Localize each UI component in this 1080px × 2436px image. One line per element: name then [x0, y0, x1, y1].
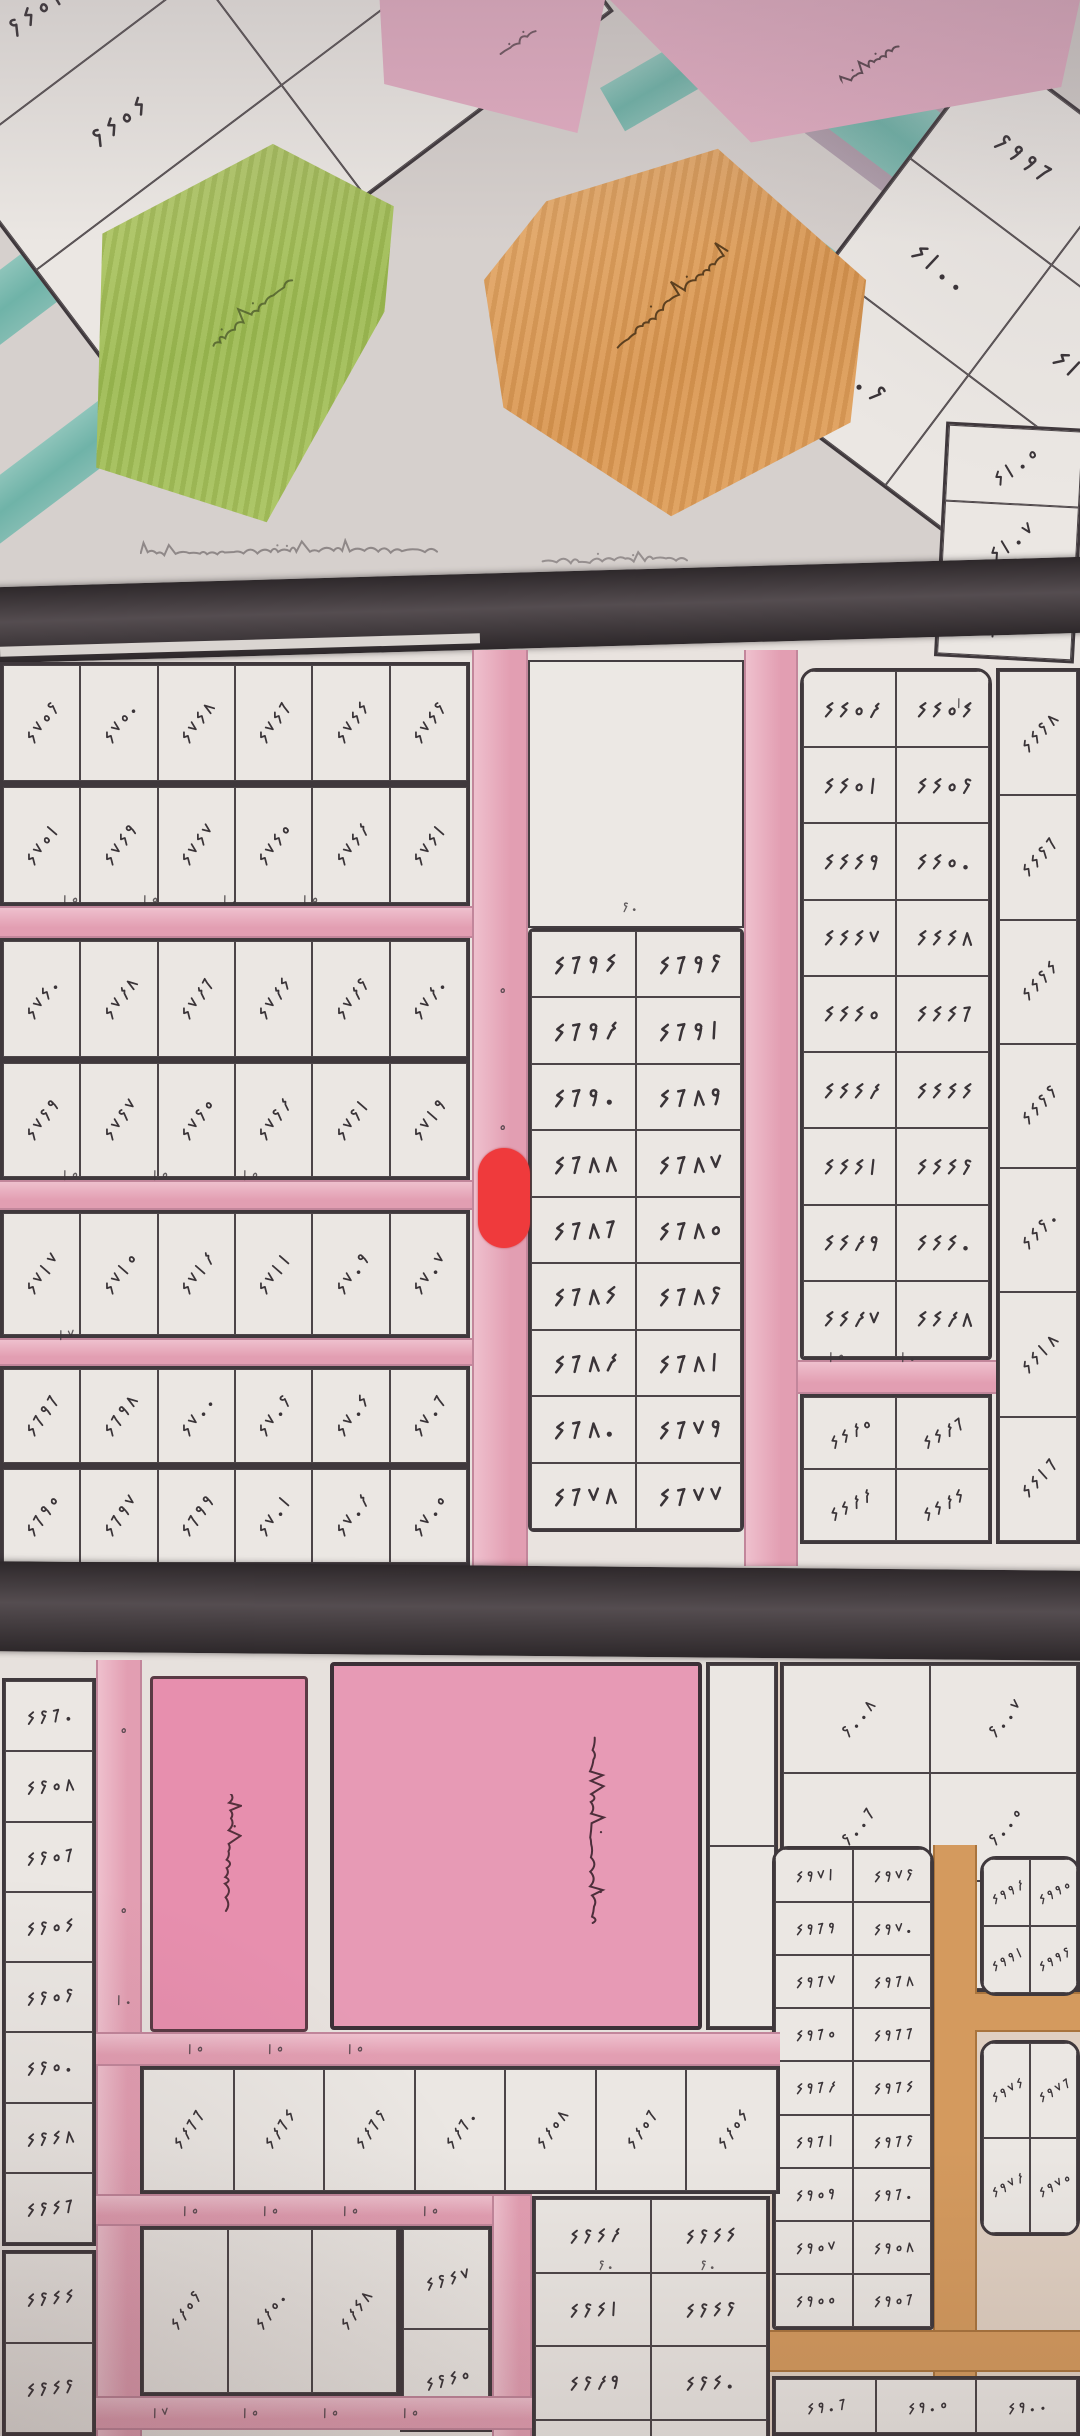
plot-cell: [312, 941, 389, 1057]
plot-number-glyphs: [319, 2405, 339, 2420]
plot-number-glyphs: [399, 2405, 419, 2420]
plot-row-bottom-right-edge: [772, 2376, 1080, 2436]
plot-cell: [775, 1955, 853, 2008]
plot-cell: [983, 2043, 1030, 2138]
plot-number: [792, 1920, 836, 1938]
plot-cell: [636, 1396, 741, 1462]
plot-cell: [1030, 1926, 1077, 1993]
plot-cell: [803, 900, 896, 976]
plot-number-glyphs: [904, 2396, 949, 2417]
plot-number-glyphs: [184, 2041, 204, 2056]
plot-cell: [896, 823, 989, 899]
plot-cell: [803, 747, 896, 823]
plot-number: [1015, 709, 1060, 756]
plot-number: [565, 2372, 620, 2394]
plot-number: [654, 1349, 724, 1377]
plot-cell: [775, 2274, 853, 2327]
plot-number: [250, 2288, 289, 2335]
plot-number-glyphs: [1015, 1331, 1060, 1378]
plot-cell: [686, 2069, 777, 2191]
plot-strip-1a: [0, 662, 470, 784]
plot-cell: [403, 2229, 489, 2329]
plot-number: [549, 950, 619, 978]
street-left-3: [0, 1338, 472, 1366]
plot-cell: [596, 2069, 687, 2191]
plot-number-glyphs: [917, 1485, 968, 1524]
plot-number: [1034, 2076, 1073, 2106]
plot-number-glyphs: [565, 2225, 620, 2247]
plot-number-glyphs: [264, 2041, 284, 2056]
plot-number-glyphs: [870, 2185, 914, 2203]
plot-cell: [143, 2069, 234, 2191]
plot-number: [549, 1349, 619, 1377]
plot-number-glyphs: [792, 1920, 836, 1938]
plot-number-glyphs: [253, 1095, 295, 1145]
plot-number: [983, 1804, 1025, 1849]
plot-cell: [775, 2061, 853, 2114]
plot-cell: [80, 787, 157, 903]
plot-number: [407, 1491, 449, 1541]
plot-number-glyphs: [22, 1775, 75, 1798]
plot-number: [549, 1416, 619, 1444]
plot-number: [22, 1775, 75, 1798]
street-dimension: [344, 2041, 364, 2056]
plot-number-glyphs: [870, 1920, 914, 1938]
plot-number: [531, 2107, 570, 2154]
plot-number: [330, 1491, 372, 1541]
plot-cell: [775, 2115, 853, 2168]
plot-number: [824, 1485, 875, 1524]
street-central-west: [472, 650, 528, 1566]
plot-cell: [1030, 2138, 1077, 2233]
plot-cell: [5, 1962, 93, 2032]
plot-cell: [853, 2168, 931, 2221]
street-dimension: [339, 2203, 359, 2218]
plot-number-glyphs: [22, 1915, 75, 1938]
plot-number-glyphs: [330, 820, 372, 870]
plot-strip-4b: [0, 1466, 470, 1566]
plot-number-glyphs: [253, 1391, 295, 1441]
plot-number: [792, 2026, 836, 2044]
plot-number-glyphs: [253, 1491, 295, 1541]
plot-number-glyphs: [259, 2107, 298, 2154]
plot-number-glyphs: [913, 1080, 973, 1101]
plot-number-glyphs: [179, 2203, 199, 2218]
plot-number: [21, 1095, 63, 1145]
plot-cell: [80, 665, 157, 781]
plot-number-glyphs: [496, 1120, 506, 1134]
plot-number-glyphs: [549, 1150, 619, 1178]
plot-cell: [803, 1128, 896, 1204]
plot-strip-3: [0, 1210, 470, 1338]
plot-number-glyphs: [407, 1095, 449, 1145]
plot-cell: [5, 2103, 93, 2173]
plot-number-glyphs: [330, 698, 372, 748]
plot-number-glyphs: [22, 2126, 75, 2149]
plot-number: [0, 0, 69, 42]
plot-number-glyphs: [897, 1349, 917, 1364]
plot-number-glyphs: [820, 699, 880, 720]
plot-block-bottom-right: [772, 1846, 934, 2330]
plot-number-glyphs: [792, 2132, 836, 2150]
plot-number-glyphs: [330, 974, 372, 1024]
plot-cell: [390, 1369, 467, 1463]
plot-number-glyphs: [21, 1391, 63, 1441]
plot-cell: [896, 1052, 989, 1128]
plot-number-glyphs: [549, 1216, 619, 1244]
plot-number: [654, 1216, 724, 1244]
plot-number: [1015, 958, 1060, 1005]
plot-number: [792, 2079, 836, 2097]
plot-number: [681, 2298, 736, 2320]
plot-cell: [636, 997, 741, 1063]
plot-number-glyphs: [549, 950, 619, 978]
plot-number-glyphs: [22, 2056, 75, 2079]
plot-number-glyphs: [339, 2203, 359, 2218]
street-dimension: [59, 1167, 79, 1182]
plot-number: [22, 1915, 75, 1938]
plot-number-glyphs: [440, 2107, 479, 2154]
plot-number: [820, 699, 880, 720]
plot-number-glyphs: [98, 1249, 140, 1299]
plot-number-glyphs: [792, 2026, 836, 2044]
plot-number-glyphs: [913, 775, 973, 796]
plot-number-glyphs: [836, 1804, 878, 1849]
street-dimension: [619, 899, 639, 914]
plot-number: [21, 1249, 63, 1299]
plot-number: [824, 1413, 875, 1452]
street-dimension: [697, 2257, 717, 2272]
plot-cell: [775, 2168, 853, 2221]
plot-cell: [390, 1469, 467, 1563]
plot-number-glyphs: [820, 1308, 880, 1329]
plot-number-glyphs: [820, 1232, 880, 1253]
plot-cell: [312, 1213, 389, 1335]
plot-column-left-edge: [2, 1678, 96, 2246]
plot-cell: [636, 1463, 741, 1529]
plot-number-glyphs: [0, 0, 69, 42]
plot-number: [792, 2185, 836, 2203]
plot-cell: [930, 1665, 1077, 1773]
plot-cell: [853, 1849, 931, 1902]
plot-number-glyphs: [1015, 1207, 1060, 1254]
plot-number-glyphs: [98, 698, 140, 748]
plot-cell: [999, 920, 1077, 1044]
plot-number: [98, 974, 140, 1024]
plot-cell: [390, 665, 467, 781]
zone-school: مدرسة البنين: [330, 1662, 702, 2030]
plot-number-glyphs: [55, 1327, 75, 1342]
plot-number: [22, 2126, 75, 2149]
plot-number: [98, 1391, 140, 1441]
plot-number: [987, 1945, 1026, 1975]
plot-number: [253, 1249, 295, 1299]
plot-cell: [775, 2008, 853, 2061]
plot-number-glyphs: [792, 2079, 836, 2097]
plot-number: [870, 2026, 914, 2044]
street-dimension: [825, 1349, 845, 1364]
map-photo: حديقة مناطق تجارية روضة حضانة: [0, 0, 1080, 2436]
plot-cell: [896, 671, 989, 747]
plot-number-glyphs: [654, 1416, 724, 1444]
plot-number: [549, 1150, 619, 1178]
plot-number: [1015, 1207, 1060, 1254]
plot-cell: [983, 1859, 1030, 1926]
plot-cell: [636, 1263, 741, 1329]
plot-number-glyphs: [407, 1491, 449, 1541]
plot-number: [330, 698, 372, 748]
plot-number: [1015, 834, 1060, 881]
street-dimension: [117, 1723, 127, 1737]
street-dimension: [897, 1349, 917, 1364]
plot-number-glyphs: [917, 1413, 968, 1452]
street-dimension: [264, 2041, 284, 2056]
plot-number: [987, 1878, 1026, 1908]
plot-number: [983, 1696, 1025, 1741]
plot-number-glyphs: [595, 2257, 615, 2272]
plot-number: [1034, 1945, 1073, 1975]
plot-number-glyphs: [549, 1482, 619, 1510]
plot-number-glyphs: [870, 1867, 914, 1885]
plot-number-glyphs: [239, 1167, 259, 1182]
plot-number-glyphs: [407, 974, 449, 1024]
plot-cell: [5, 1822, 93, 1892]
plot-number: [259, 2107, 298, 2154]
plot-cell: [531, 1263, 636, 1329]
plot-number-glyphs: [820, 1156, 880, 1177]
plot-number: [98, 1095, 140, 1145]
plot-number: [169, 2107, 208, 2154]
plot-cell: [80, 941, 157, 1057]
plot-number: [870, 1867, 914, 1885]
plot-row-bottom-left-1: [140, 2066, 780, 2194]
plot-number-glyphs: [407, 1391, 449, 1441]
plot-cell: [896, 1205, 989, 1281]
plot-number-glyphs: [913, 1308, 973, 1329]
plot-number: [98, 1491, 140, 1541]
plot-number: [565, 2298, 620, 2320]
plot-number-glyphs: [824, 1413, 875, 1452]
plot-number-glyphs: [825, 1349, 845, 1364]
plot-cell: [158, 1063, 235, 1177]
plot-number-glyphs: [22, 2376, 75, 2399]
plot-strip-4a: [0, 1366, 470, 1466]
plot-number-glyphs: [654, 1216, 724, 1244]
plot-number-glyphs: [344, 2041, 364, 2056]
plot-number-glyphs: [175, 1095, 217, 1145]
plot-number: [549, 1017, 619, 1045]
plot-number-glyphs: [988, 126, 1057, 186]
nursery-label-scribble: [216, 1794, 242, 1914]
plot-number: [654, 1283, 724, 1311]
plot-number-glyphs: [175, 820, 217, 870]
plot-number-glyphs: [22, 1704, 75, 1727]
plot-number-glyphs: [913, 1156, 973, 1177]
plot-cell: [390, 787, 467, 903]
plot-number: [987, 2171, 1026, 2201]
plot-number-glyphs: [913, 1003, 973, 1024]
plot-cell: [896, 976, 989, 1052]
plot-number: [98, 698, 140, 748]
plot-number: [792, 2291, 836, 2309]
plot-number: [21, 698, 63, 748]
plot-cell: [5, 1681, 93, 1751]
plot-cell: [999, 1044, 1077, 1168]
plot-number: [792, 2132, 836, 2150]
plot-cell: [945, 425, 1080, 508]
plot-cell: [5, 2032, 93, 2102]
plot-cell: [999, 1417, 1077, 1541]
plot-number: [681, 2225, 736, 2247]
plot-cell: [235, 1063, 312, 1177]
plot-cell: [853, 2274, 931, 2327]
plot-number-glyphs: [419, 2203, 439, 2218]
plot-number-glyphs: [565, 2298, 620, 2320]
plot-cell: [390, 1213, 467, 1335]
plot-number-glyphs: [549, 1416, 619, 1444]
plot-cell: [803, 671, 896, 747]
plot-cell: [80, 1369, 157, 1463]
plot-number: [917, 1485, 968, 1524]
plot-number: [681, 2372, 736, 2394]
street-dimension: [117, 1903, 127, 1917]
plot-cell: [531, 1396, 636, 1462]
plot-number-glyphs: [1015, 709, 1060, 756]
plot-number: [175, 698, 217, 748]
plot-number: [654, 1482, 724, 1510]
plot-number-glyphs: [619, 899, 639, 914]
plot-number: [1015, 1331, 1060, 1378]
plot-cell: [535, 2346, 651, 2420]
plot-number-glyphs: [654, 1083, 724, 1111]
road-main-lower: [0, 1561, 1080, 1661]
plot-cell: [636, 1197, 741, 1263]
plot-number-glyphs: [987, 2171, 1026, 2201]
plot-number: [904, 2396, 949, 2417]
plot-number-glyphs: [987, 1878, 1026, 1908]
plot-cell: [3, 1213, 80, 1335]
plot-cell: [636, 1064, 741, 1130]
plot-number: [836, 1804, 878, 1849]
plot-cell: [312, 1469, 389, 1563]
plot-number-glyphs: [117, 1723, 127, 1737]
plot-number-glyphs: [59, 1167, 79, 1182]
plot-number: [820, 851, 880, 872]
plot-number-glyphs: [681, 2225, 736, 2247]
plot-number-glyphs: [21, 698, 63, 748]
plot-number: [253, 820, 295, 870]
plot-cell: [505, 2069, 596, 2191]
plot-cell: [390, 1063, 467, 1177]
plot-number-glyphs: [175, 698, 217, 748]
plot-cell: [876, 2379, 977, 2433]
plot-cell: [803, 1052, 896, 1128]
plot-number-glyphs: [59, 892, 79, 907]
street-dimension: [595, 2257, 615, 2272]
plot-cell: [535, 2199, 651, 2273]
plot-number-glyphs: [420, 2265, 471, 2294]
plot-cell: [803, 1469, 896, 1541]
plot-number: [83, 92, 152, 152]
plot-number-glyphs: [253, 974, 295, 1024]
street-bottom-2: [96, 2194, 532, 2226]
plot-number: [420, 2365, 471, 2394]
plot-number: [870, 1920, 914, 1938]
plot-number: [870, 2238, 914, 2256]
plot-cell: [976, 2379, 1077, 2433]
plot-number: [350, 2107, 389, 2154]
plot-cell: [775, 2221, 853, 2274]
plot-number-glyphs: [22, 2286, 75, 2309]
plot-number: [820, 1003, 880, 1024]
plot-number: [913, 1080, 973, 1101]
plot-number: [549, 1482, 619, 1510]
plot-number-glyphs: [870, 2291, 914, 2309]
plot-number-glyphs: [1034, 1878, 1073, 1908]
plot-number-glyphs: [913, 851, 973, 872]
plot-number: [1034, 2171, 1073, 2201]
street-left-1: [0, 906, 472, 938]
plot-cell: [531, 997, 636, 1063]
plot-column-far-right: [996, 668, 1080, 1544]
plot-number: [913, 775, 973, 796]
street-dimension: [149, 1167, 169, 1182]
plot-number: [330, 1391, 372, 1441]
plot-block-small-a: [980, 1856, 1080, 1996]
road-upper-smudge-2: [540, 548, 690, 568]
plot-cell: [999, 1168, 1077, 1292]
plot-number: [253, 1095, 295, 1145]
plot-cell: [999, 671, 1077, 795]
plot-number: [803, 2396, 848, 2417]
plot-number-glyphs: [654, 1283, 724, 1311]
plot-cell: [235, 1469, 312, 1563]
plot-number: [22, 1704, 75, 1727]
plot-number: [440, 2107, 479, 2154]
plot-number-glyphs: [299, 892, 319, 907]
plot-number: [792, 2238, 836, 2256]
plot-number-glyphs: [175, 1249, 217, 1299]
plot-number-glyphs: [330, 1491, 372, 1541]
plot-number-glyphs: [259, 2203, 279, 2218]
plot-cell: [235, 787, 312, 903]
plot-cell: [896, 1128, 989, 1204]
plot-cell: [803, 976, 896, 1052]
plot-number: [21, 1491, 63, 1541]
plot-number-glyphs: [654, 1482, 724, 1510]
plot-cell: [775, 2379, 876, 2433]
plot-cell: [5, 1751, 93, 1821]
plot-number: [1015, 1082, 1060, 1129]
plot-cell: [3, 787, 80, 903]
plot-number: [1046, 343, 1080, 403]
street-dimension: [179, 2203, 199, 2218]
plot-number: [913, 1232, 973, 1253]
plot-number: [654, 1150, 724, 1178]
street-dimension: [59, 892, 79, 907]
plot-number: [420, 2265, 471, 2294]
plot-number-glyphs: [1015, 1455, 1060, 1502]
plot-number: [175, 820, 217, 870]
plot-cell: [636, 1330, 741, 1396]
plot-cell: [531, 931, 636, 997]
pink-top-left-scribble: [493, 19, 542, 62]
plot-number-glyphs: [98, 1491, 140, 1541]
plot-number: [1034, 1878, 1073, 1908]
plot-number: [870, 1973, 914, 1991]
plot-number: [330, 1095, 372, 1145]
plot-number: [407, 820, 449, 870]
